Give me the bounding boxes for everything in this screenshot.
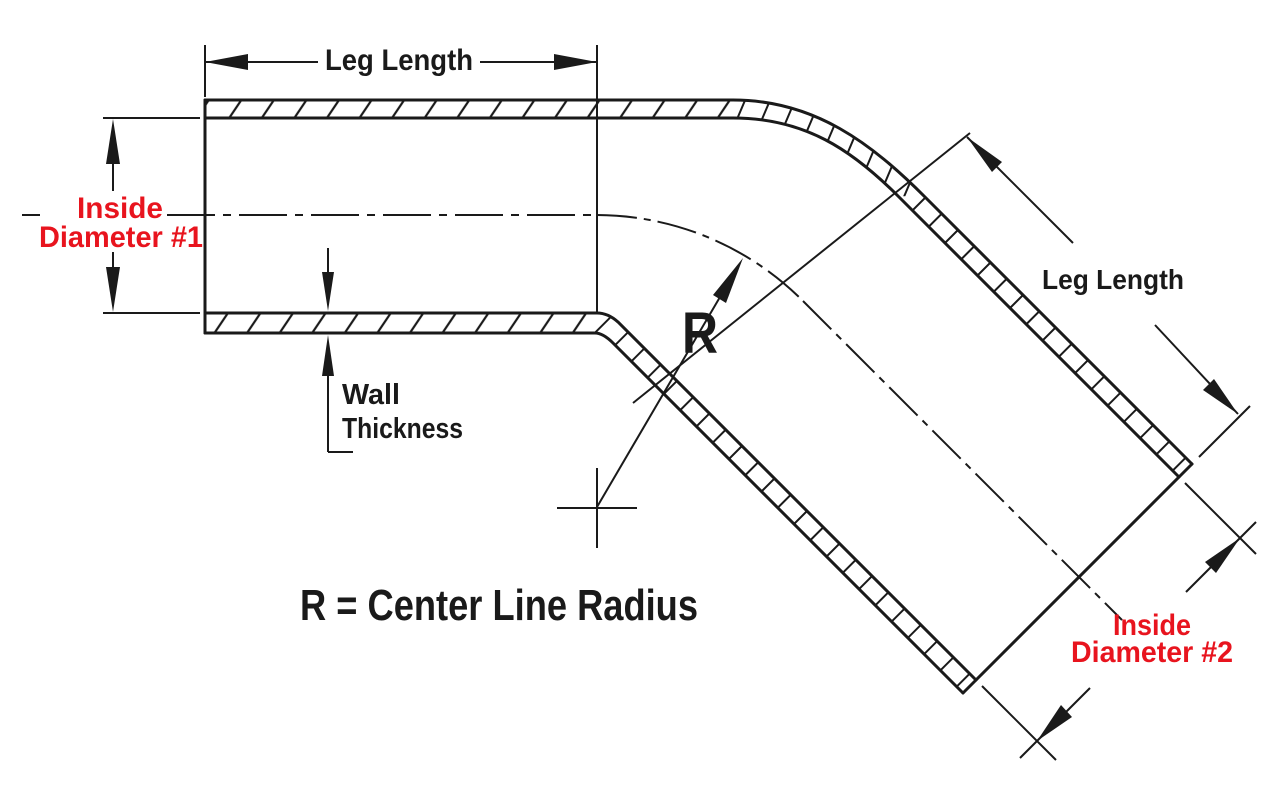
arrowhead-right-icon [554,54,597,70]
bottom-wall-hatch-diagonal [595,313,976,693]
diagram-canvas: Leg Length Inside Diameter #1 Wall Thick… [0,0,1280,800]
top-leg-length-label: Leg Length [325,44,473,77]
radius-symbol-label: R [682,301,718,366]
arrowhead-left-icon [205,54,248,70]
top-wall-hatch-horizontal [205,100,733,118]
dimension-inside-diameter-2: Inside Diameter #2 [982,483,1256,760]
arrowhead-radius-icon [713,258,743,303]
arrowhead-upleft-icon [967,137,1002,172]
wall-thickness-label-line1: Wall [342,379,400,411]
dimension-line-overshoot [1240,522,1256,538]
extension-line [1199,406,1250,457]
arrowhead-up-icon [322,335,334,376]
elbow-dimension-diagram: Leg Length Inside Diameter #1 Wall Thick… [0,0,1280,800]
extension-line [1185,483,1256,554]
arrowhead-downright-icon [1203,379,1238,414]
arrowhead-up-icon [106,119,120,164]
extension-line [982,686,1056,760]
outer-bottom-wall-line [205,333,963,693]
diagonal-leg-length-label: Leg Length [1042,264,1184,295]
radius-note-label: R = Center Line Radius [300,581,698,630]
inside-diameter-2-label-line2: Diameter #2 [1071,636,1233,669]
centerline [22,215,1122,620]
dimension-line-overshoot [1020,741,1037,758]
top-leg-length-lines [205,45,597,313]
centerline-bend-arc [597,215,803,301]
top-wall-hatch-bend [733,100,925,197]
arrowhead-down-icon [322,272,334,311]
extension-line [633,133,970,403]
arrowhead-down-icon [106,267,120,312]
inside-diameter-1-label-line2: Diameter #1 [39,221,203,254]
dimension-wall-thickness: Wall Thickness [322,248,463,452]
wall-thickness-label-line2: Thickness [342,413,463,445]
bottom-wall-hatch-horizontal [205,313,597,333]
dimension-top-leg-length: Leg Length [205,44,597,313]
